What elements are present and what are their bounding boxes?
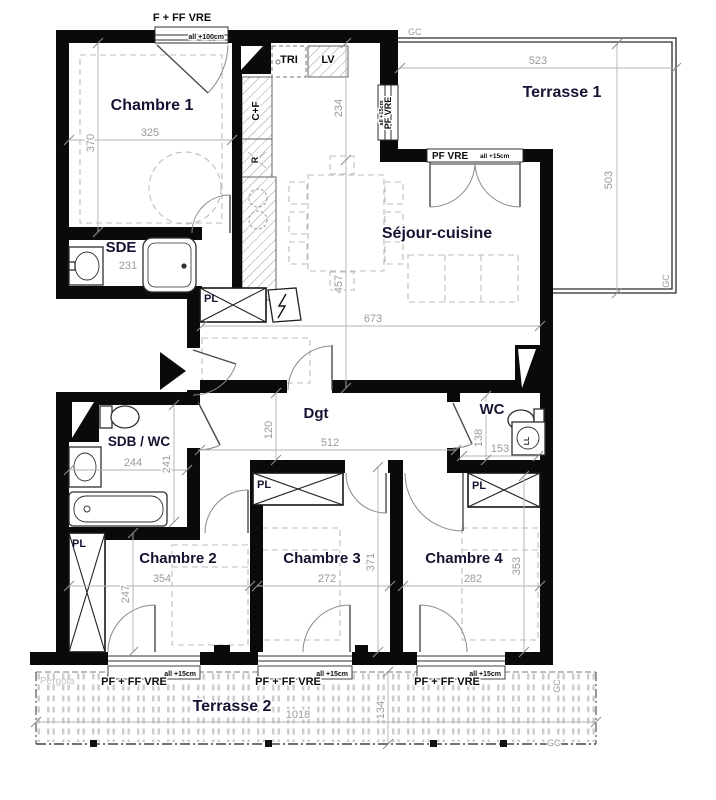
dim-sdb-w: 244 (124, 457, 142, 469)
terrace2-window-1: PF + FF VRE (101, 676, 167, 688)
window-type-terrace1: PF VRE (432, 151, 468, 162)
chambre3-label: Chambre 3 (283, 550, 361, 567)
dim-sejour-w: 673 (364, 313, 382, 325)
sejour-label: Séjour-cuisine (382, 225, 492, 242)
dim-sejour-entry: 234 (333, 99, 345, 117)
cf-label: C+F (251, 101, 262, 120)
sdb-toilet (111, 406, 139, 428)
gc-terrace2-bottom: GC (547, 738, 561, 748)
dim-chambre4-h: 353 (511, 557, 523, 575)
window-type-top: F + FF VRE (153, 12, 211, 24)
pergola-label: Pergola (40, 676, 75, 687)
terrace2-window-3: PF + FF VRE (414, 676, 480, 688)
terrace2-window-2: PF + FF VRE (255, 676, 321, 688)
dim-wc-w: 153 (491, 443, 509, 455)
dim-chambre2-h: 247 (120, 585, 132, 603)
sill-15-east: all +15cm (379, 100, 385, 125)
dim-chambre1-w: 325 (141, 127, 159, 139)
terrasse1-label: Terrasse 1 (523, 84, 602, 101)
wc-label: WC (480, 401, 505, 418)
kitchen-counter (242, 177, 276, 300)
pl-chambre4: PL (472, 480, 486, 492)
lv-label: LV (321, 54, 335, 66)
sdb-label: SDB / WC (108, 434, 170, 449)
dim-terrasse1-h: 503 (603, 171, 615, 189)
dim-terrasse2-w: 1018 (286, 709, 310, 721)
dim-terrasse1-w: 523 (529, 55, 547, 67)
dim-sde-w: 231 (119, 260, 137, 272)
dim-chambre1-h: 370 (85, 134, 97, 152)
dim-dgt-w: 512 (321, 437, 339, 449)
sill-15-terrace1: all +15cm (480, 153, 510, 160)
sde-label: SDE (106, 239, 137, 256)
dim-wc-h: 138 (473, 429, 485, 447)
sill-15-ch2: all +15cm (164, 671, 196, 678)
chambre1-label: Chambre 1 (111, 97, 194, 114)
dim-chambre3-h: 371 (365, 553, 377, 571)
sdb-toilet-tank (100, 406, 112, 428)
floor-plan: Chambre 1 SDE Séjour-cuisine Terrasse 1 … (0, 0, 716, 800)
terrasse2-label: Terrasse 2 (193, 698, 272, 715)
pl-hall: PL (204, 293, 218, 305)
dim-chambre4-w: 282 (464, 573, 482, 585)
gc-terrace2-right: GC (552, 679, 562, 693)
electrical-panel (268, 288, 301, 322)
r-label: R (250, 156, 260, 163)
gc-terrace1-top: GC (408, 27, 422, 37)
gc-terrace1-right: GC (661, 274, 671, 288)
dgt-label: Dgt (304, 405, 329, 422)
tri-label: TRI (280, 54, 298, 66)
dim-sejour-h: 457 (333, 275, 345, 293)
ll-label: LL (524, 436, 531, 445)
dim-terrasse2-h: 134 (375, 701, 387, 719)
sill-15-ch3: all +15cm (316, 671, 348, 678)
chambre4-label: Chambre 4 (425, 550, 503, 567)
dim-chambre3-w: 272 (318, 573, 336, 585)
pl-chambre2: PL (72, 538, 86, 550)
sill-100: all +100cm (188, 34, 224, 41)
shower (143, 238, 196, 292)
dim-sdb-h: 241 (161, 455, 173, 473)
dim-chambre2-w: 354 (153, 573, 171, 585)
dim-dgt-h: 120 (263, 421, 275, 439)
chambre2-label: Chambre 2 (139, 550, 217, 567)
pl-chambre3: PL (257, 479, 271, 491)
